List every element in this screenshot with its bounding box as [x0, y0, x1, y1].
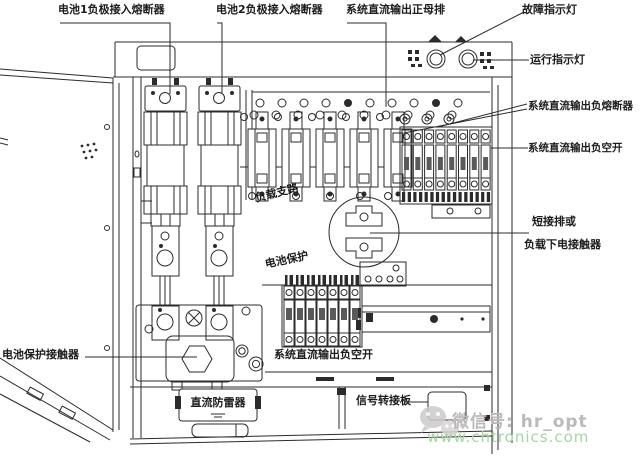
- contactor-hex: [182, 346, 212, 372]
- hex-nut: [236, 345, 248, 357]
- battery-protect-contactor: [136, 305, 263, 390]
- label-fault-lamp: 故障指示灯: [522, 4, 577, 17]
- label-battery1-fuse: 电池1负极接入熔断器: [58, 4, 165, 17]
- panel-dots-left: [408, 50, 422, 67]
- output-breaker-unit: [425, 130, 434, 202]
- indicator-panel: [408, 35, 494, 69]
- label-battery-contactor: 电池保护接触器: [2, 349, 79, 362]
- watermark-website: www.chtronics.com: [427, 428, 589, 446]
- label-neg-fuse: 系统直流输出负熔断器: [528, 100, 633, 112]
- label-neg-breaker-bottom: 系统直流输出负空开: [274, 349, 373, 362]
- load-contactor: [329, 197, 399, 267]
- label-run-lamp: 运行指示灯: [530, 54, 585, 67]
- load-breaker-unit: [316, 112, 344, 201]
- bp-breaker-unit: [295, 275, 305, 346]
- output-breaker-unit: [459, 130, 468, 202]
- output-breaker-unit: [481, 130, 490, 202]
- panel-triangle: [428, 35, 442, 42]
- output-breaker-unit: [436, 130, 445, 202]
- bp-breaker-unit: [317, 275, 327, 346]
- battery-fuse-stack-2: [198, 78, 241, 340]
- battery-fuse-stack-1: [144, 78, 187, 340]
- bp-breaker-unit: [284, 275, 294, 346]
- load-breaker-unit: [384, 112, 412, 201]
- output-negative-breaker-bank: [400, 127, 492, 218]
- door-hinge: [105, 226, 110, 231]
- leader-busbar: [347, 23, 386, 107]
- label-signal-board: 信号转接板: [356, 395, 411, 408]
- door-hinge: [105, 346, 110, 351]
- output-breaker-unit: [447, 130, 456, 202]
- battery-protect-breakers: [262, 262, 492, 347]
- label-short-bar-2: 负载下电接触器: [524, 239, 601, 252]
- bp-breaker-unit: [339, 275, 349, 346]
- cabinet-door: [0, 69, 119, 442]
- label-short-bar-1: 短接排或: [532, 216, 576, 229]
- label-neg-breaker-right: 系统直流输出负空开: [528, 142, 623, 154]
- diagram-canvas: 电池1负极接入熔断器 电池2负极接入熔断器 系统直流输出正母排 故障指示灯 运行…: [0, 0, 640, 462]
- output-breaker-unit: [470, 130, 479, 202]
- door-vent-dots: [81, 143, 98, 160]
- label-positive-busbar: 系统直流输出正母排: [346, 4, 445, 17]
- label-dc-arrester: 直流防雷器: [181, 394, 255, 410]
- bp-breaker-unit: [306, 275, 316, 346]
- leader-fault-lamp: [440, 12, 524, 55]
- hex-nut: [249, 357, 263, 371]
- panel-triangle: [455, 36, 467, 42]
- output-breaker-unit: [413, 130, 422, 202]
- door-hinge: [105, 125, 110, 130]
- bp-breaker-unit: [328, 275, 338, 346]
- label-battery2-fuse: 电池2负极接入熔断器: [216, 4, 323, 17]
- leader-battery2: [217, 23, 222, 94]
- load-breaker-unit: [350, 112, 378, 201]
- battery-fuse-stacks: [144, 78, 241, 340]
- cabinet-line-drawing: [0, 0, 640, 462]
- load-branch-breakers: [240, 112, 412, 201]
